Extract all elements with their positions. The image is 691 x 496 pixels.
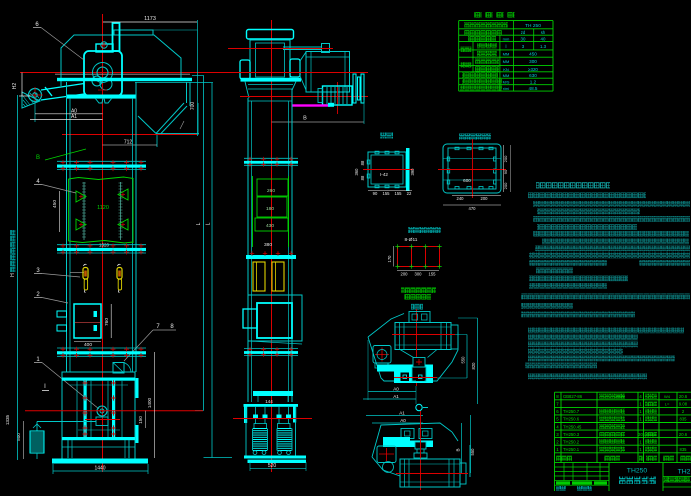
- svg-text:200: 200: [503, 155, 508, 162]
- svg-text:200: 200: [503, 182, 508, 189]
- svg-text:B: B: [456, 448, 461, 451]
- svg-text:L: L: [206, 222, 212, 225]
- svg-text:MM: MM: [503, 59, 510, 64]
- svg-text:1173: 1173: [144, 16, 156, 22]
- svg-text:1440: 1440: [94, 466, 105, 472]
- svg-text:712: 712: [124, 140, 133, 146]
- svg-text:835: 835: [680, 417, 688, 422]
- svg-text:TH 250: TH 250: [525, 23, 541, 29]
- svg-text:630: 630: [529, 73, 537, 78]
- svg-text:A1: A1: [399, 411, 405, 416]
- svg-text:20×5: 20×5: [615, 394, 625, 399]
- svg-text:20.6: 20.6: [679, 394, 688, 399]
- svg-text:TH250.3: TH250.3: [563, 432, 580, 437]
- svg-text:L: L: [196, 222, 202, 225]
- svg-text:1.3: 1.3: [540, 44, 547, 49]
- svg-text:I-42: I-42: [380, 172, 388, 177]
- svg-text:520: 520: [268, 463, 277, 469]
- svg-text:A1: A1: [393, 394, 399, 399]
- svg-text:180: 180: [266, 206, 274, 212]
- svg-text:470: 470: [469, 206, 477, 211]
- svg-text:144: 144: [265, 399, 273, 404]
- svg-text:550: 550: [470, 448, 475, 456]
- svg-text:200: 200: [481, 196, 489, 201]
- svg-text:260: 260: [267, 188, 275, 194]
- svg-text:300: 300: [415, 272, 423, 277]
- svg-text:TH250.6: TH250.6: [563, 417, 580, 422]
- svg-text:155: 155: [429, 272, 437, 277]
- svg-text:B: B: [303, 116, 307, 122]
- svg-text:450: 450: [529, 52, 537, 57]
- svg-text:88: 88: [360, 175, 365, 180]
- svg-text:8-Ø11: 8-Ø11: [405, 237, 418, 243]
- svg-text:40: 40: [541, 37, 546, 42]
- svg-text:360: 360: [354, 168, 359, 176]
- svg-text:H2: H2: [12, 83, 18, 90]
- svg-text:300: 300: [529, 59, 537, 64]
- svg-text:88: 88: [360, 160, 365, 165]
- svg-text:820: 820: [471, 362, 476, 370]
- svg-text:155: 155: [395, 191, 403, 196]
- svg-text:TH250.45: TH250.45: [563, 424, 582, 429]
- svg-text:550: 550: [461, 356, 466, 364]
- svg-text:835: 835: [680, 447, 688, 452]
- svg-text:H: H: [10, 273, 16, 277]
- svg-text:90: 90: [373, 191, 378, 196]
- svg-text:700: 700: [190, 102, 196, 111]
- svg-text:A0: A0: [400, 418, 406, 423]
- svg-text:TH250: TH250: [627, 468, 648, 475]
- svg-text:W4: W4: [664, 394, 671, 399]
- svg-text:≥320: ≥320: [528, 67, 538, 72]
- svg-text:sh: sh: [541, 30, 546, 35]
- svg-text:zd: zd: [521, 30, 526, 35]
- svg-text:1.2: 1.2: [530, 80, 537, 85]
- svg-text:l: l: [506, 44, 507, 49]
- svg-text:M/S: M/S: [503, 81, 510, 85]
- svg-text:760: 760: [104, 318, 110, 326]
- svg-text:600: 600: [463, 178, 471, 183]
- svg-text:MM: MM: [503, 73, 510, 78]
- svg-text:1335: 1335: [5, 414, 10, 425]
- svg-text:9.08: 9.08: [679, 402, 688, 407]
- svg-text:500: 500: [16, 433, 21, 441]
- svg-text:240: 240: [457, 196, 465, 201]
- svg-text:30: 30: [521, 37, 526, 42]
- svg-text:200: 200: [401, 272, 409, 277]
- svg-text:90: 90: [503, 169, 508, 174]
- svg-text:400: 400: [84, 342, 92, 348]
- svg-text:380: 380: [264, 242, 272, 248]
- svg-text:48.5: 48.5: [529, 86, 538, 91]
- svg-text:20.6: 20.6: [679, 432, 688, 437]
- svg-text:MM: MM: [503, 52, 510, 57]
- svg-text:GB827-86: GB827-86: [563, 394, 583, 399]
- svg-text:Q235-A: Q235-A: [644, 433, 657, 437]
- svg-text:390: 390: [410, 168, 415, 176]
- svg-text:B: B: [36, 155, 40, 161]
- svg-text:430: 430: [266, 223, 274, 229]
- svg-text:1400: 1400: [147, 397, 152, 408]
- svg-text:TH250.1: TH250.1: [563, 447, 580, 452]
- svg-text:A1: A1: [71, 114, 77, 120]
- svg-text:L=: L=: [665, 401, 670, 406]
- svg-text:170: 170: [387, 255, 392, 263]
- svg-text:1120: 1120: [97, 205, 109, 211]
- svg-text:TH2: TH2: [678, 469, 691, 476]
- svg-text:155: 155: [383, 191, 391, 196]
- svg-text:r/mi: r/mi: [503, 87, 509, 91]
- svg-text:KN: KN: [503, 67, 509, 72]
- svg-text:30: 30: [638, 432, 643, 437]
- svg-text:22: 22: [407, 191, 412, 196]
- svg-text:150: 150: [138, 416, 143, 424]
- svg-text:TH250.2: TH250.2: [563, 439, 580, 444]
- svg-text:mm: mm: [503, 37, 510, 42]
- svg-text:450: 450: [52, 200, 58, 208]
- svg-text:TH250.7: TH250.7: [563, 409, 580, 414]
- svg-text:A0: A0: [393, 387, 399, 392]
